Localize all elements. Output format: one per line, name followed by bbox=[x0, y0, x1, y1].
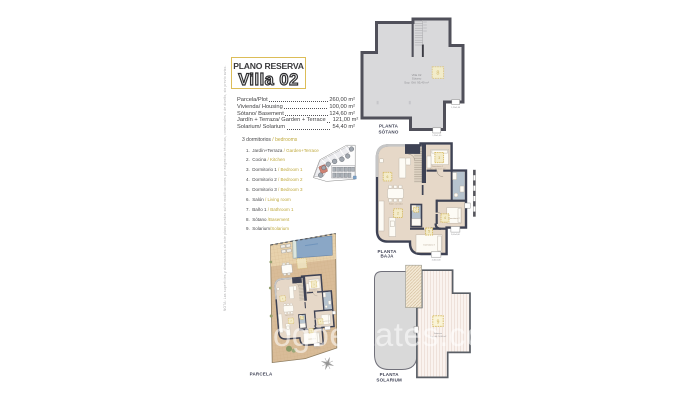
svg-text:Sup. útil: 10,5 m²: Sup. útil: 10,5 m² bbox=[430, 167, 446, 170]
svg-text:3: 3 bbox=[438, 156, 440, 160]
svg-text:Salón comedor: Salón comedor bbox=[389, 203, 403, 206]
svg-text:1,20x1,00: 1,20x1,00 bbox=[451, 107, 461, 109]
svg-text:BAJA: BAJA bbox=[380, 254, 394, 259]
svg-text:2,00x1,00: 2,00x1,00 bbox=[451, 234, 461, 236]
svg-text:SÓTANO: SÓTANO bbox=[378, 127, 398, 134]
svg-text:4: 4 bbox=[444, 216, 446, 220]
svg-text:PARCELA: PARCELA bbox=[250, 372, 273, 377]
svg-text:Dormitorio 3: Dormitorio 3 bbox=[423, 243, 435, 246]
svg-text:8: 8 bbox=[436, 71, 439, 77]
svg-text:6: 6 bbox=[387, 175, 389, 179]
svg-text:5: 5 bbox=[428, 230, 430, 234]
svg-text:PLANTA: PLANTA bbox=[380, 372, 400, 377]
svg-text:7: 7 bbox=[415, 208, 417, 212]
svg-text:2: 2 bbox=[397, 211, 399, 215]
svg-text:Sup. Útil: 95,40 m²: Sup. Útil: 95,40 m² bbox=[404, 79, 429, 84]
svg-text:1,20x1,00: 1,20x1,00 bbox=[432, 135, 442, 137]
svg-text:2,40x1,00: 2,40x1,00 bbox=[432, 259, 442, 261]
svg-text:Dormitorio 2: Dormitorio 2 bbox=[448, 217, 460, 220]
svg-text:PLANTA: PLANTA bbox=[379, 123, 399, 128]
svg-text:SOLARIUM: SOLARIUM bbox=[376, 378, 402, 383]
